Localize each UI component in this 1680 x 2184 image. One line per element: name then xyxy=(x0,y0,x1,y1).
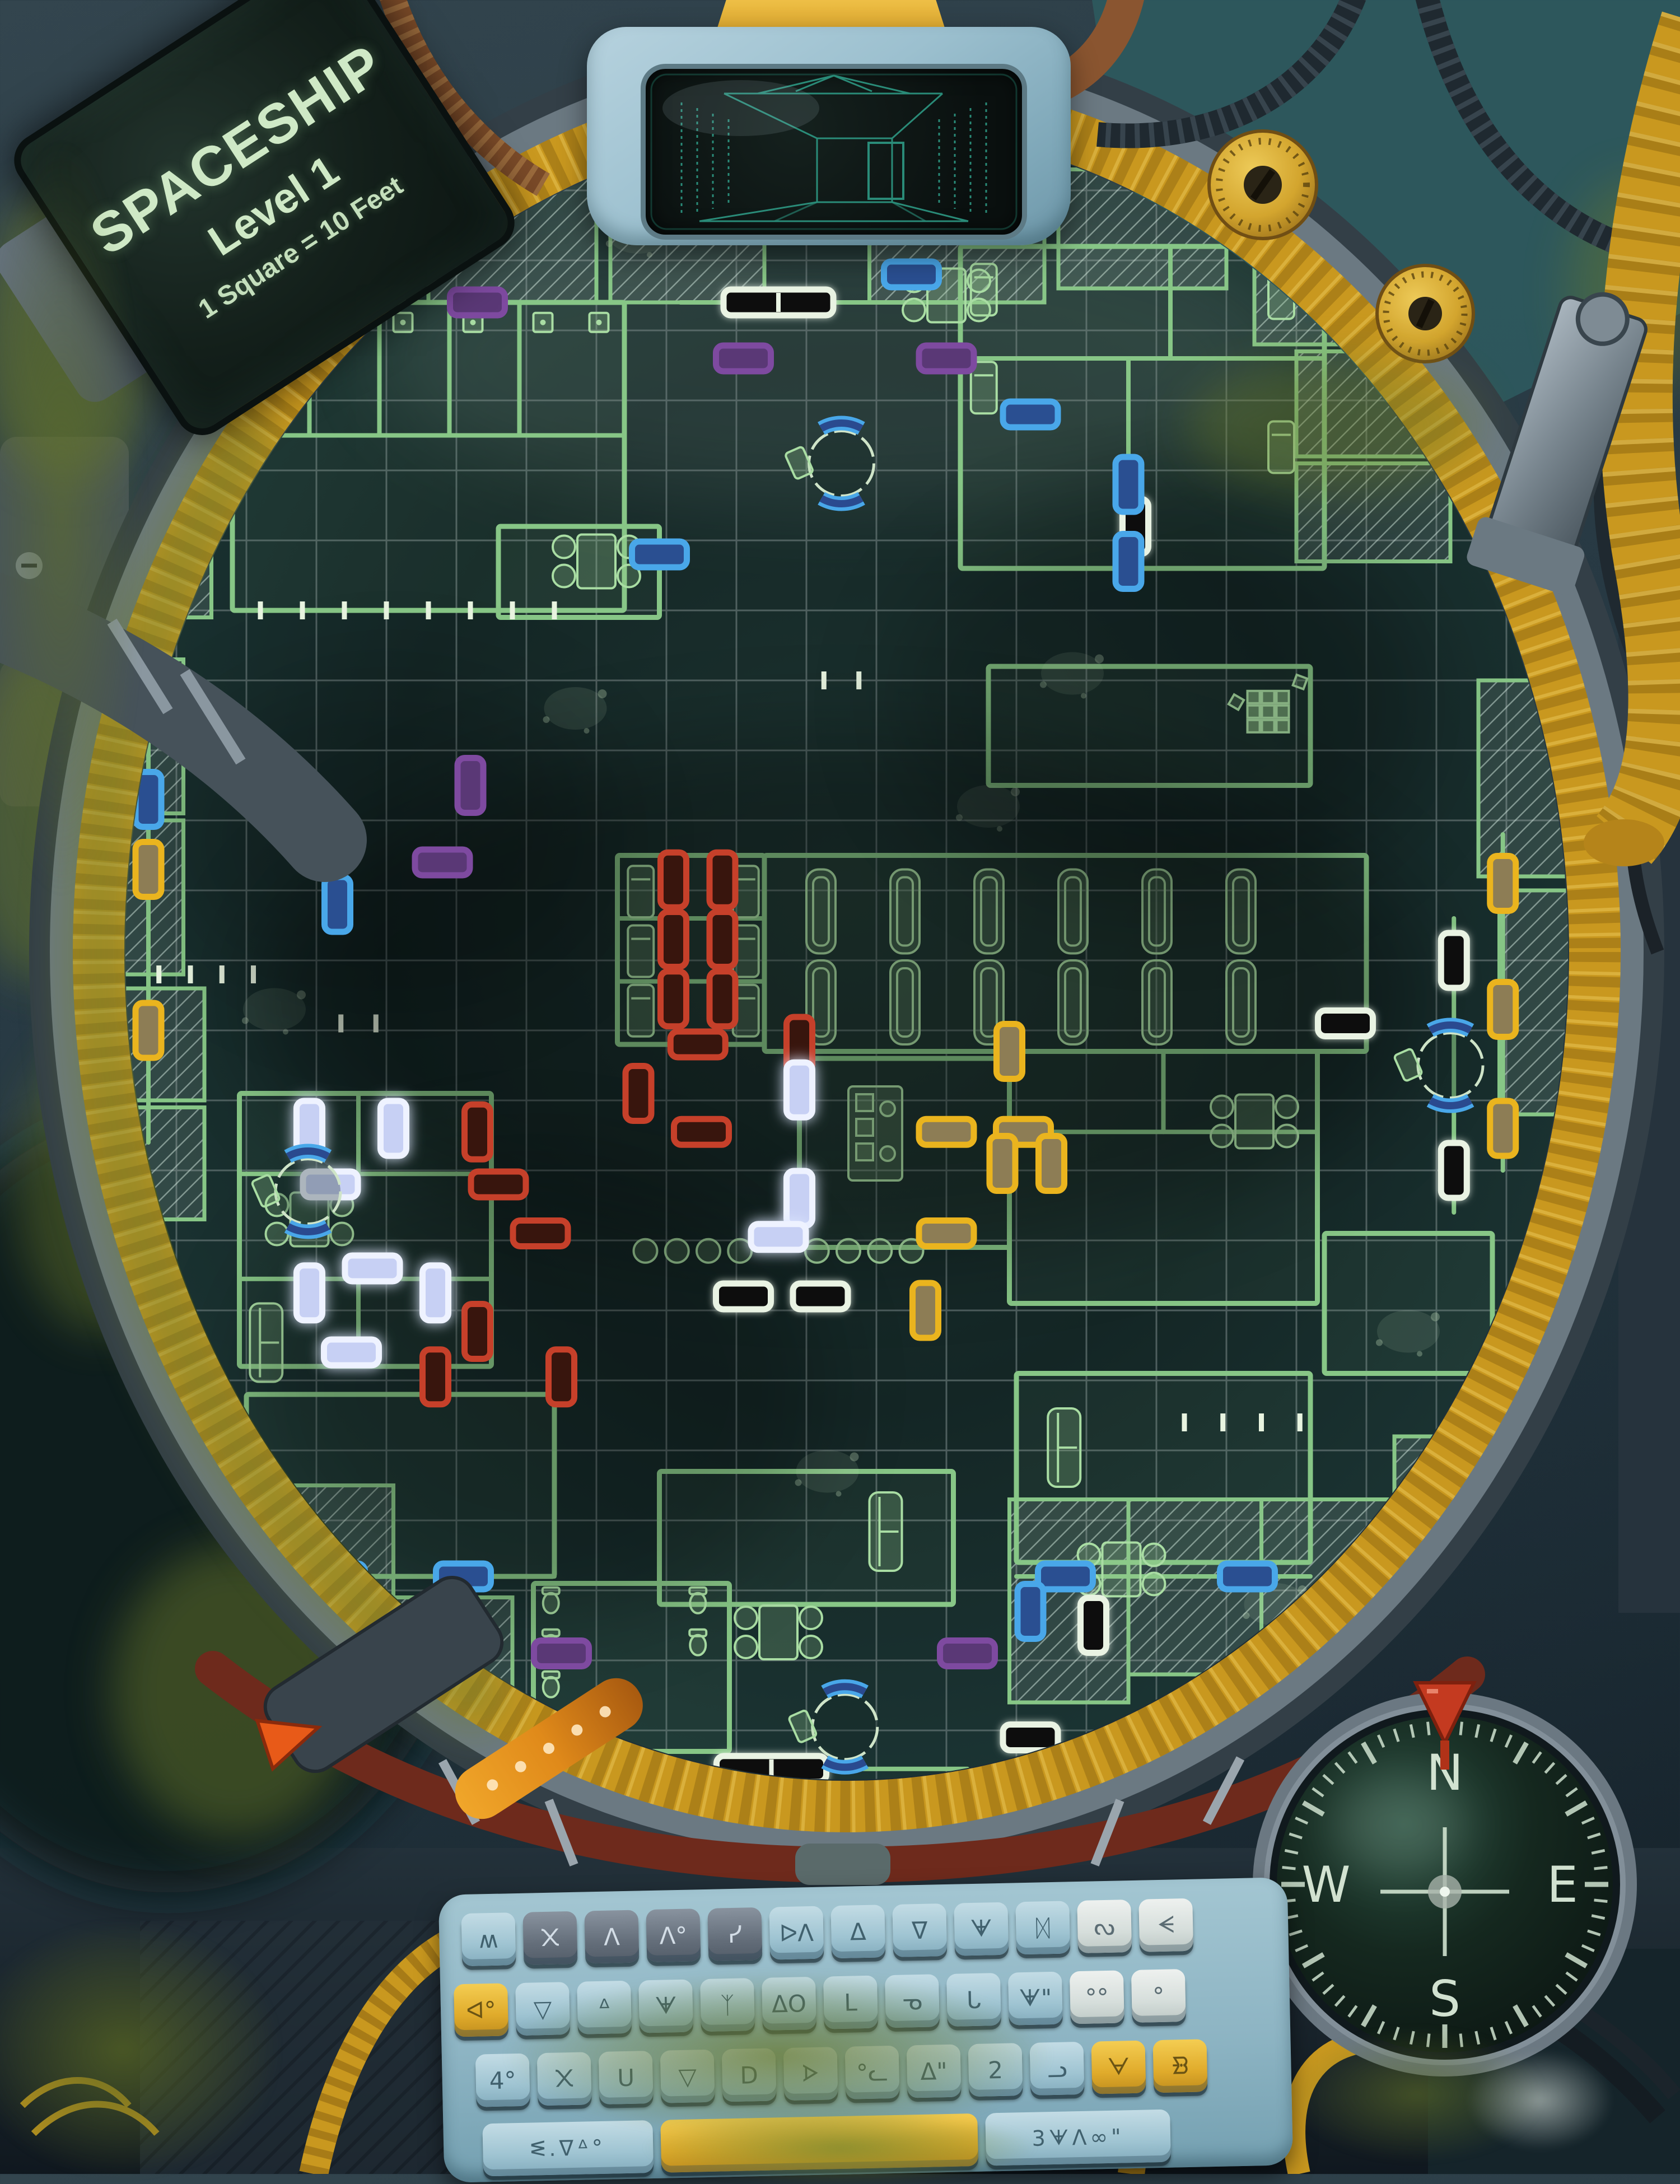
keyboard-key[interactable]: ᒪ xyxy=(823,1976,878,2029)
compass-tick xyxy=(1427,1722,1429,1735)
door-lavender xyxy=(787,1062,813,1117)
door-purple xyxy=(415,850,470,875)
tube-end-cap xyxy=(1584,819,1664,866)
keyboard-key[interactable]: ᐱ° xyxy=(646,1908,701,1962)
door-white xyxy=(1081,1598,1107,1653)
door-lavender xyxy=(324,1340,379,1365)
splatter-dot xyxy=(1243,1612,1250,1619)
compass-south: S xyxy=(1429,1970,1460,2028)
splatter-dot xyxy=(598,689,607,698)
keyboard-key[interactable]: °° xyxy=(1070,1970,1124,2024)
airlock-chamber xyxy=(809,431,874,496)
door-white xyxy=(1318,1011,1373,1037)
door-lavender xyxy=(751,1224,806,1250)
door-white xyxy=(1441,1143,1467,1198)
dial-knob[interactable] xyxy=(1377,265,1473,362)
keyboard-key[interactable]: ᗕ xyxy=(1138,1898,1193,1952)
toilet-bowl xyxy=(543,1677,559,1697)
splatter-dot xyxy=(836,1491,842,1497)
chair xyxy=(800,1607,822,1629)
crt-monitor xyxy=(587,0,1071,245)
door-red xyxy=(465,1304,491,1359)
door-yellow xyxy=(1039,1136,1065,1191)
door-purple xyxy=(534,1641,589,1667)
keyboard-key[interactable]: 2 xyxy=(968,2043,1023,2097)
splatter-dot xyxy=(850,1453,859,1462)
keyboard-key[interactable]: ᐅᐱ xyxy=(769,1906,824,1960)
keyboard-spacebar[interactable] xyxy=(660,2113,978,2173)
keyboard-key[interactable]: ᗖ xyxy=(638,1979,693,2033)
chair xyxy=(553,565,575,587)
keyboard-key[interactable]: °ᓚ xyxy=(845,2046,900,2099)
door-blue xyxy=(1018,1584,1043,1639)
door-yellow xyxy=(997,1024,1023,1079)
door-red xyxy=(471,1172,526,1197)
table xyxy=(577,535,615,589)
door-blue xyxy=(884,262,939,287)
locker-dot xyxy=(598,321,601,324)
locker-dot xyxy=(472,321,475,324)
door-red xyxy=(513,1221,568,1247)
keyboard-key[interactable]: ᐱ xyxy=(584,1910,639,1963)
airlock-chamber xyxy=(813,1695,878,1760)
splatter-dot xyxy=(647,252,652,258)
chair xyxy=(735,1607,757,1629)
locker-dot xyxy=(542,321,545,324)
locker-dot xyxy=(402,321,405,324)
keyboard-wide-key[interactable]: 3ᗖᐱ∞" xyxy=(985,2110,1171,2166)
door-purple xyxy=(940,1641,995,1667)
splatter-dot xyxy=(1431,1313,1440,1322)
keyboard-key[interactable]: ᛞ xyxy=(1015,1901,1070,1954)
keyboard-key[interactable]: ᔓ xyxy=(1077,1900,1132,1953)
door-lavender xyxy=(787,1171,813,1226)
keyboard-wide-key[interactable]: ᓬ.ᐁᐞ° xyxy=(482,2120,654,2176)
compass-tick xyxy=(1427,2034,1429,2047)
keyboard-key[interactable]: ᓗ xyxy=(1030,2042,1085,2096)
organic-splatter xyxy=(1377,1310,1440,1353)
keyboard-key[interactable]: ᐃ xyxy=(830,1905,885,1958)
smoke-shadow xyxy=(896,504,1434,907)
door-red xyxy=(661,852,687,907)
chair xyxy=(903,299,925,321)
door-red xyxy=(710,852,735,907)
door-blue xyxy=(1116,534,1141,589)
splatter-dot xyxy=(242,1018,249,1024)
door-yellow xyxy=(990,1136,1015,1191)
compass-tick xyxy=(1460,1722,1462,1735)
keyboard-key[interactable]: ᐃO xyxy=(762,1977,816,2031)
keyboard-key[interactable]: ▽ xyxy=(515,1982,570,2036)
keyboard-key[interactable]: ᒐ xyxy=(946,1973,1001,2027)
chair xyxy=(800,1636,822,1658)
keyboard-key[interactable]: ᗖ" xyxy=(1008,1972,1063,2026)
door-yellow xyxy=(919,1119,974,1145)
keyboard-key[interactable]: ᙭ xyxy=(522,1911,577,1965)
door-white xyxy=(1441,933,1467,988)
door-lavender xyxy=(423,1266,449,1320)
keyboard-key[interactable]: ᗌ xyxy=(783,2047,838,2101)
door-red xyxy=(661,972,687,1026)
keyboard-key[interactable]: ᗖ xyxy=(954,1902,1009,1956)
door-blue xyxy=(1220,1564,1275,1589)
chair xyxy=(968,299,990,321)
tube-sleeve xyxy=(795,1844,890,1885)
door-blue xyxy=(632,542,687,567)
door-lavender xyxy=(297,1266,323,1320)
splatter-dot xyxy=(1376,1340,1383,1346)
door-purple xyxy=(458,758,483,813)
compass-tick xyxy=(1282,1867,1296,1869)
door-yellow xyxy=(1490,982,1516,1037)
keyboard-key[interactable]: ᐃ" xyxy=(907,2044,962,2098)
door-lavender xyxy=(381,1101,407,1156)
door-yellow xyxy=(1490,1101,1516,1156)
door-blue xyxy=(1116,457,1141,512)
table xyxy=(1103,1543,1141,1597)
keyboard-key[interactable]: ▽ xyxy=(660,2050,715,2103)
compass-west: W xyxy=(1301,1856,1350,1914)
chair xyxy=(968,270,990,292)
door-red xyxy=(465,1104,491,1159)
alien-keyboard: ʍ᙭ᐱᐱ°ᓯᐅᐱᐃᐁᗖᛞᔓᗕᐊ°▽ᐞᗖᛉᐃOᒪᓀᒐᗖ"°°°4°᙭ᑌ▽ᗞᗌ°ᓚᐃ… xyxy=(438,1877,1293,2183)
chair xyxy=(735,1636,757,1658)
compass-east: E xyxy=(1547,1856,1578,1914)
door-red xyxy=(661,912,687,967)
door-white xyxy=(1003,1725,1058,1751)
keyboard-key[interactable]: ᓀ xyxy=(885,1974,940,2028)
door-purple xyxy=(919,346,974,371)
door-red xyxy=(670,1032,725,1057)
door-red xyxy=(626,1066,651,1121)
keyboard-key[interactable]: ᗿ xyxy=(1152,2039,1207,2093)
wireframe-corridor-icon xyxy=(646,69,1022,235)
compass-tick xyxy=(1594,1867,1608,1869)
door-blue xyxy=(1038,1564,1093,1589)
chair xyxy=(553,536,575,558)
door-white xyxy=(716,1284,771,1309)
splatter-dot xyxy=(1417,1351,1422,1357)
door-yellow xyxy=(136,842,161,897)
door-red xyxy=(549,1350,575,1404)
splatter-dot xyxy=(584,728,590,734)
keyboard-key[interactable]: ᓯ xyxy=(707,1907,762,1961)
chair xyxy=(266,1223,288,1245)
keyboard-key[interactable]: ʍ xyxy=(461,1912,516,1966)
door-red xyxy=(674,1119,729,1145)
keyboard-key[interactable]: ᐁ xyxy=(892,1903,947,1957)
airlock-chamber xyxy=(276,1159,340,1224)
door-yellow xyxy=(913,1283,939,1338)
door-yellow xyxy=(1490,856,1516,911)
organic-splatter xyxy=(544,687,607,730)
toilet-bowl xyxy=(690,1635,706,1655)
door-blue xyxy=(325,877,351,932)
table xyxy=(759,1606,797,1659)
monitor-screen xyxy=(641,64,1027,240)
keyboard-key[interactable]: 4° xyxy=(475,2054,530,2107)
keyboard-key[interactable]: ᗄ xyxy=(1091,2041,1146,2094)
dial-knob[interactable] xyxy=(1209,131,1317,239)
door-white xyxy=(793,1284,848,1309)
door-red xyxy=(710,912,735,967)
door-red xyxy=(423,1350,449,1404)
compass-tick xyxy=(1460,2034,1462,2047)
keyboard-key[interactable]: ᙭ xyxy=(537,2052,592,2106)
door-blue xyxy=(1003,402,1058,427)
compass-tick xyxy=(1594,1900,1608,1902)
keyboard-key[interactable]: ᐞ xyxy=(577,1981,632,2034)
compass: N E S W xyxy=(1260,1683,1630,2069)
door-red xyxy=(710,972,735,1026)
door-purple xyxy=(716,346,771,371)
door-lavender xyxy=(345,1256,400,1281)
chair xyxy=(1143,1573,1165,1595)
keyboard-key[interactable]: ᐊ° xyxy=(454,1983,508,2037)
door-purple xyxy=(450,290,505,315)
keyboard-key[interactable]: ᑌ xyxy=(599,2051,654,2104)
toilet-bowl xyxy=(690,1593,706,1613)
door-yellow xyxy=(919,1221,974,1247)
chair xyxy=(1143,1544,1165,1566)
keyboard-key[interactable]: ᛉ xyxy=(700,1978,755,2032)
door-yellow xyxy=(136,1003,161,1058)
keyboard-key[interactable]: ᗞ xyxy=(722,2048,777,2102)
airlock-chamber xyxy=(1418,1033,1483,1098)
keyboard-key[interactable]: ° xyxy=(1131,1969,1186,2023)
